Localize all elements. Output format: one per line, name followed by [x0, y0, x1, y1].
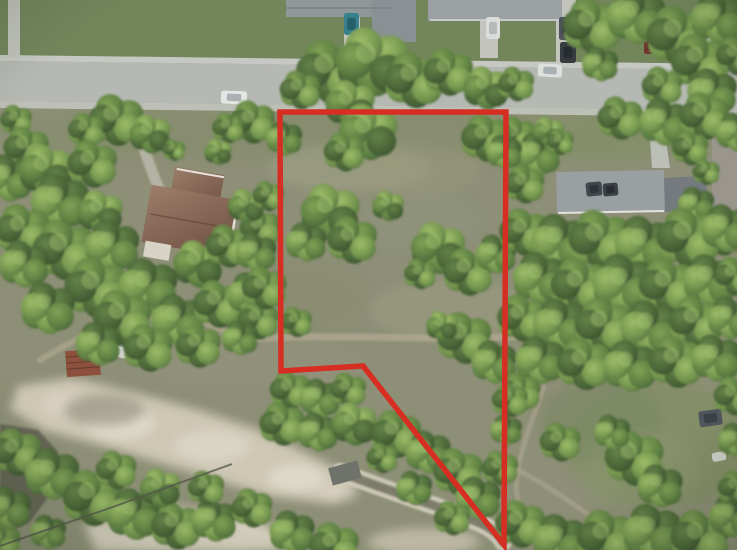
aerial-photo: [0, 0, 737, 550]
photo-vignette: [0, 0, 737, 550]
screenshot-root: [0, 0, 737, 550]
